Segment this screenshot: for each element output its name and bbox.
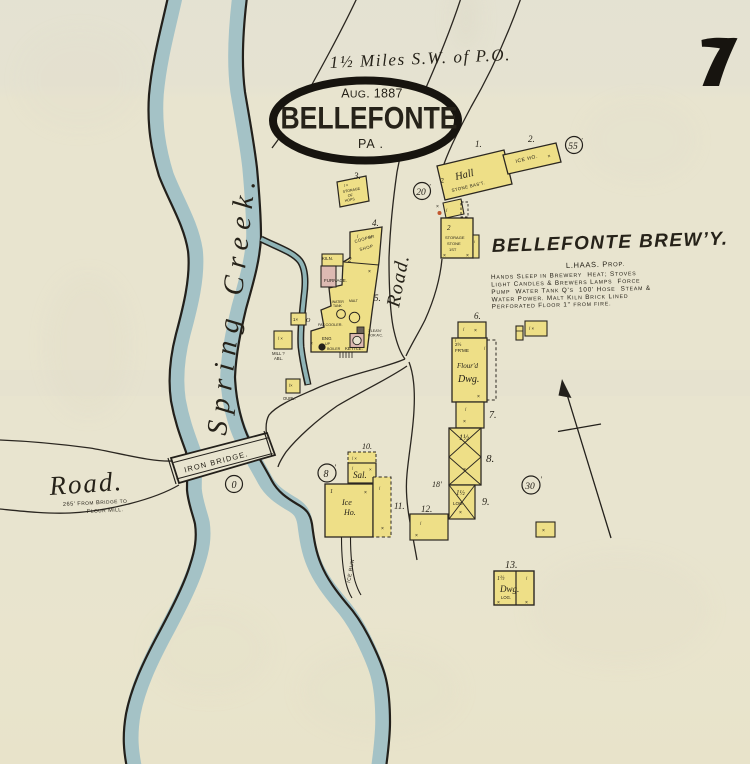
svg-text:STORAGE: STORAGE — [445, 235, 465, 240]
svg-text:': ' — [334, 463, 336, 472]
svg-text:10.: 10. — [362, 442, 372, 451]
svg-text:FOR A’C.: FOR A’C. — [368, 334, 383, 338]
svg-text:1’LEA’N’: 1’LEA’N’ — [368, 329, 382, 333]
svg-text:/ ×: / × — [529, 326, 534, 331]
svg-text:Sal.: Sal. — [353, 470, 367, 480]
svg-text:×: × — [310, 341, 313, 347]
svg-text:BELLEFONTE: BELLEFONTE — [281, 100, 458, 136]
svg-text:8.: 8. — [486, 453, 494, 465]
svg-text:×: × — [443, 253, 446, 259]
svg-text:13.: 13. — [505, 560, 518, 571]
svg-text:×: × — [466, 253, 469, 259]
svg-text:PA .: PA . — [358, 137, 384, 151]
svg-text:PAT.COOLER.: PAT.COOLER. — [318, 323, 343, 327]
svg-text:×: × — [542, 528, 545, 534]
svg-text:7.: 7. — [489, 410, 497, 421]
svg-text:LOG.: LOG. — [501, 595, 511, 600]
svg-text:×: × — [368, 269, 371, 275]
svg-text:×: × — [415, 533, 418, 539]
svg-text:ENG: ENG — [322, 336, 332, 341]
svg-text:Flour'd: Flour'd — [456, 362, 478, 370]
svg-text:18': 18' — [432, 480, 442, 489]
svg-text:1½: 1½ — [459, 433, 469, 442]
svg-text:Dwg.: Dwg. — [457, 374, 479, 385]
svg-text:3.: 3. — [353, 171, 361, 181]
svg-text:×: × — [381, 526, 384, 532]
svg-text:1½: 1½ — [456, 489, 466, 497]
svg-text:×: × — [459, 510, 462, 516]
svg-text:ABL.: ABL. — [274, 356, 283, 361]
svg-text:': ' — [540, 475, 542, 484]
svg-text:8: 8 — [324, 469, 329, 480]
svg-text:1×: 1× — [293, 317, 298, 322]
svg-text:1½: 1½ — [497, 575, 505, 582]
svg-text:20: 20 — [416, 188, 426, 198]
svg-text:30: 30 — [524, 482, 535, 492]
svg-text:12.: 12. — [421, 504, 432, 514]
svg-text:STONE: STONE — [447, 241, 461, 246]
svg-text:5.: 5. — [374, 293, 381, 303]
svg-text:O: O — [306, 318, 311, 324]
svg-text:KETTLE.: KETTLE. — [345, 346, 363, 351]
svg-text:4.: 4. — [372, 218, 379, 228]
svg-text:Road.: Road. — [47, 466, 124, 501]
svg-text:MALT: MALT — [349, 299, 358, 303]
svg-text:6.: 6. — [474, 311, 481, 321]
svg-text:FURNACE.: FURNACE. — [324, 278, 347, 283]
svg-text:×: × — [477, 394, 480, 400]
svg-text:×: × — [463, 419, 466, 425]
svg-text:×: × — [436, 204, 439, 210]
svg-text:KILN.: KILN. — [322, 256, 333, 261]
svg-text:2: 2 — [447, 224, 451, 232]
svg-text:0: 0 — [232, 480, 237, 491]
svg-text:UP: UP — [325, 342, 331, 346]
svg-text:BOILER: BOILER — [327, 347, 341, 351]
svg-text:OURL.: OURL. — [283, 396, 296, 401]
svg-text:LOG: LOG — [453, 501, 463, 506]
svg-text:1ST: 1ST — [449, 247, 457, 252]
svg-text:×: × — [497, 600, 500, 606]
svg-text:/×: /× — [289, 383, 293, 388]
svg-text:Ice: Ice — [341, 498, 352, 507]
svg-text:/ ×: / × — [352, 456, 357, 461]
svg-text:11.: 11. — [394, 501, 405, 511]
svg-text:×: × — [369, 235, 372, 241]
svg-text:×: × — [364, 490, 367, 496]
svg-text:×: × — [369, 467, 372, 472]
svg-text:2: 2 — [348, 256, 352, 264]
svg-text:×: × — [474, 328, 477, 334]
svg-text:TANK: TANK — [333, 304, 343, 308]
svg-text:Ho.: Ho. — [343, 508, 356, 517]
svg-text:/ ×: / × — [278, 336, 283, 341]
svg-text:FR'ME: FR'ME — [455, 348, 469, 353]
svg-text:×: × — [525, 600, 528, 606]
svg-text:2.: 2. — [528, 134, 535, 144]
svg-text:Dwg.: Dwg. — [499, 584, 519, 594]
svg-text:1.: 1. — [475, 139, 482, 149]
svg-text:55: 55 — [568, 142, 578, 152]
svg-text:9.: 9. — [482, 497, 490, 508]
svg-text:1: 1 — [330, 489, 333, 495]
svg-text:×: × — [463, 467, 466, 473]
svg-text:AUG. 1887: AUG. 1887 — [341, 87, 403, 101]
